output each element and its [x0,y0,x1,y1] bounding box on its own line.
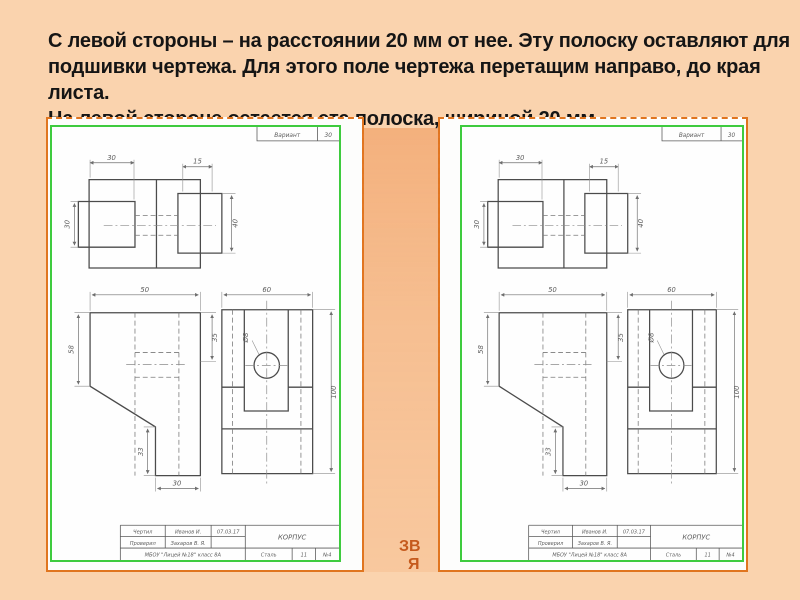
extension-lines [480,160,738,492]
dim-front-right: 35 [211,333,219,342]
engineering-drawing: 30 15 30 40 50 58 35 33 30 60 100 Ø8 Вар… [52,127,339,560]
hidden-lines [135,215,301,475]
dim-plan-left-height: 30 [64,219,72,228]
tb-material: Сталь [261,552,277,558]
sheet-frame: 30 15 30 40 50 58 35 33 30 60 100 Ø8 Вар… [460,125,744,562]
dim-front-step: 33 [545,447,553,456]
dimension-lines [74,163,331,489]
tb-part-name: КОРПУС [682,534,710,542]
hidden-text-fragment-1: ЗВ [399,538,421,556]
dim-plan-width: 30 [516,154,524,162]
dim-side-height: 100 [733,386,741,399]
dim-front-width: 50 [548,286,556,294]
tb-school: МБОУ "Лицей №18" класс 8А [145,552,222,558]
tb-drawn-label: Чертил [133,530,153,536]
dim-front-step: 33 [137,447,145,456]
text-line-1: С левой стороны – на расстоянии 20 мм от… [48,28,790,54]
tb-col2: 11 [301,552,307,558]
variant-value: 30 [728,133,736,139]
tb-material: Сталь [666,552,681,558]
engineering-drawing: 30 15 30 40 50 58 35 33 30 60 100 Ø8 Вар… [462,127,742,560]
drawing-sheet-before: 30 15 30 40 50 58 35 33 30 60 100 Ø8 Вар… [46,117,364,572]
tb-drawn-label: Чертил [541,530,561,536]
dim-front-width: 50 [140,286,149,294]
tb-drawn-name: Иванов И. [175,530,201,536]
tb-checked-name: Захаров В. Я. [171,541,206,547]
hidden-lines [543,215,705,475]
dimension-lines [484,163,734,489]
tb-checked-name: Захаров В. Я. [578,541,612,547]
tb-col2: 11 [705,552,711,558]
part-outline-views [78,180,312,476]
dim-front-right: 35 [617,333,625,342]
dim-plan-boss: 15 [600,158,608,166]
variant-label: Вариант [274,133,300,139]
extension-lines [71,160,336,492]
dim-side-width: 60 [667,286,675,294]
sheet-frame: 30 15 30 40 50 58 35 33 30 60 100 Ø8 Вар… [50,125,341,562]
variant-label: Вариант [679,133,705,139]
strip-gap [362,128,440,572]
part-outline-views [488,180,717,476]
tb-date: 07.03.17 [217,530,240,536]
dim-plan-right-height: 40 [637,219,645,228]
dim-plan-width: 30 [107,154,116,162]
text-line-2: подшивки чертежа. Для этого поле чертежа… [48,54,790,80]
dim-plan-boss: 15 [193,158,202,166]
dim-front-height: 58 [477,344,485,354]
tb-date: 07.03.17 [623,530,646,536]
tb-drawn-name: Иванов И. [582,530,608,536]
dim-hole-diameter: Ø8 [648,332,656,344]
dim-side-height: 100 [330,385,338,399]
dim-plan-right-height: 40 [232,218,240,227]
dim-front-foot: 30 [173,479,182,487]
tb-col3: №4 [725,552,734,558]
dim-plan-left-height: 30 [473,220,481,229]
tb-checked-label: Проверил [538,541,564,547]
variant-value: 30 [325,133,333,139]
text-line-3: листа. [48,80,790,106]
dim-front-height: 58 [68,344,76,353]
hidden-text-fragment-2: Я [408,556,420,574]
drawing-sheet-after: 30 15 30 40 50 58 35 33 30 60 100 Ø8 Вар… [438,117,748,572]
tb-part-name: КОРПУС [278,534,307,542]
tb-col3: №4 [322,552,331,558]
dim-side-width: 60 [262,286,271,294]
tb-school: МБОУ "Лицей №18" класс 8А [552,552,627,558]
dim-hole-diameter: Ø8 [242,332,250,344]
dim-front-foot: 30 [580,479,588,487]
tb-checked-label: Проверил [130,541,157,547]
